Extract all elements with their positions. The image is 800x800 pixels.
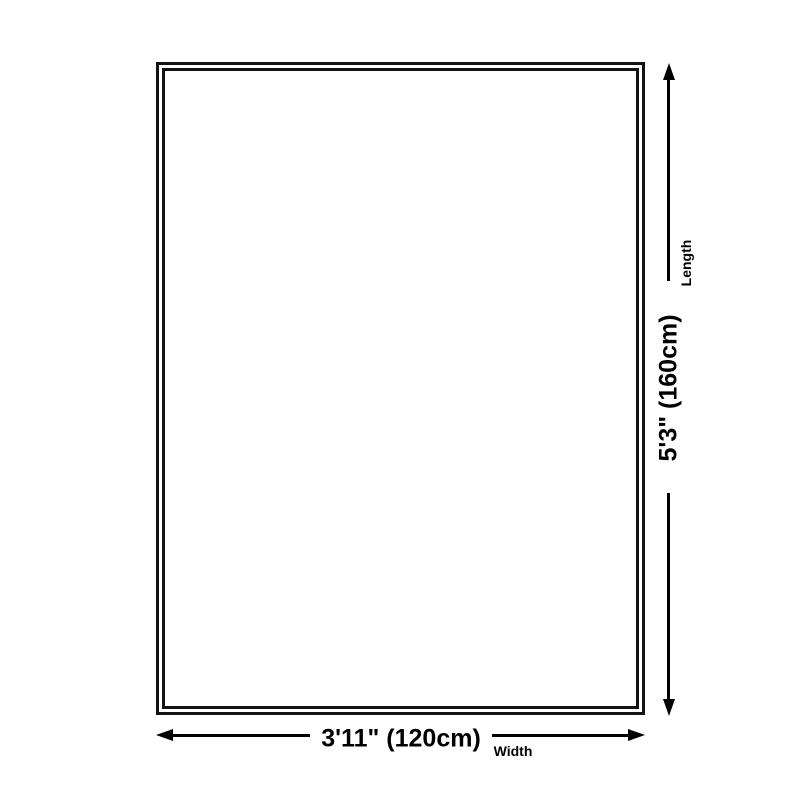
length-axis-label: Length [678,240,694,287]
length-value-label: 5'3" (160cm) [655,314,684,461]
arrowhead-right-icon [628,729,645,741]
arrowhead-down-icon [663,699,675,716]
width-value-label: 3'11" (120cm) [321,725,481,754]
length-arrow-line-bottom [667,493,670,701]
width-arrow-line-left [170,734,310,737]
item-outline-inner [162,68,639,709]
width-arrow-line-right [492,734,632,737]
dimension-diagram: 3'11" (120cm) Width Length 5'3" (160cm) [0,0,800,800]
width-axis-label: Width [494,743,533,759]
length-arrow-line-top [667,77,670,281]
item-outline-outer [156,62,645,715]
